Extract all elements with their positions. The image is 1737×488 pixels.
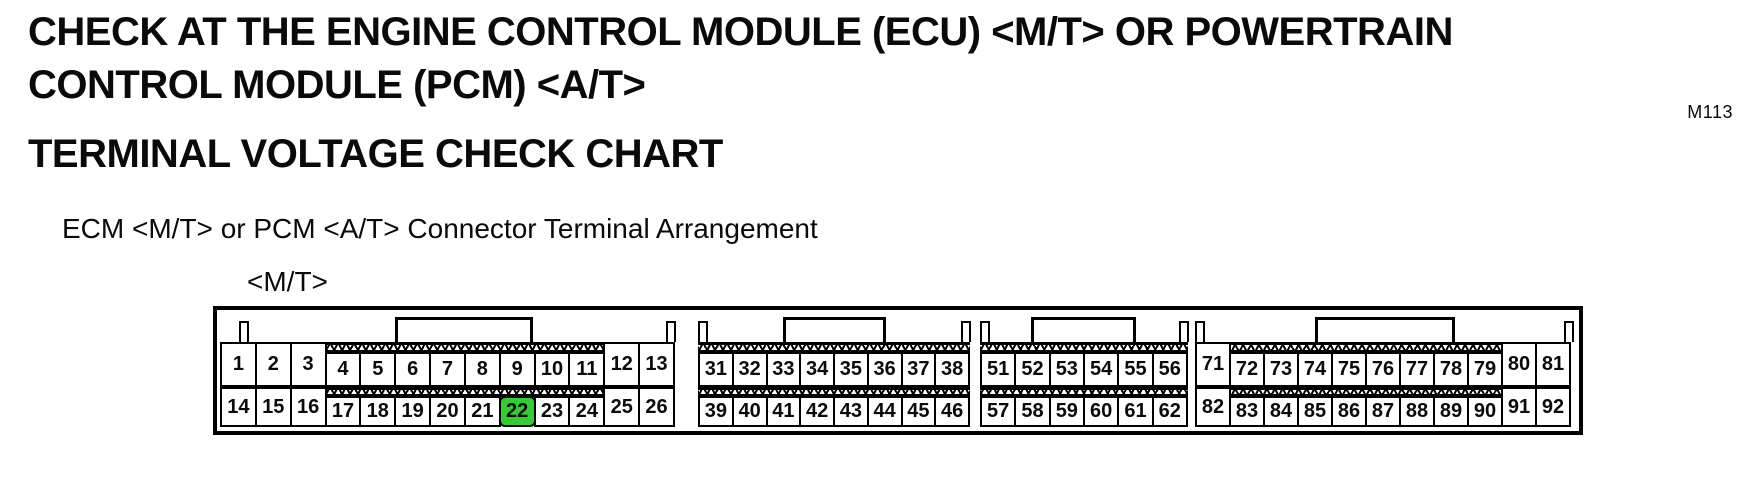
terminal-10: 10 xyxy=(534,352,571,387)
terminal-71: 71 xyxy=(1195,342,1231,387)
terminal-76: 76 xyxy=(1365,352,1401,387)
terminal-11: 11 xyxy=(568,352,605,387)
terminal-44: 44 xyxy=(867,396,903,427)
terminal-84: 84 xyxy=(1263,396,1299,427)
terminal-45: 45 xyxy=(901,396,937,427)
keying-tab xyxy=(1315,317,1455,344)
terminal-39: 39 xyxy=(698,396,734,427)
terminal-62: 62 xyxy=(1152,396,1188,427)
terminal-58: 58 xyxy=(1014,396,1050,427)
terminal-block-1: 1234567891011121314151617181920212223242… xyxy=(220,342,675,427)
terminal-60: 60 xyxy=(1083,396,1119,427)
terminal-88: 88 xyxy=(1399,396,1435,427)
terminal-2: 2 xyxy=(255,342,292,387)
terminal-85: 85 xyxy=(1297,396,1333,427)
alignment-post xyxy=(980,321,990,342)
terminal-7: 7 xyxy=(429,352,466,387)
alignment-post xyxy=(1179,321,1189,342)
terminal-90: 90 xyxy=(1467,396,1503,427)
terminal-55: 55 xyxy=(1117,352,1153,387)
terminal-block-3: 515253545556575859606162 xyxy=(980,342,1188,427)
terminal-1: 1 xyxy=(220,342,257,387)
diagram-caption: ECM <M/T> or PCM <A/T> Connector Termina… xyxy=(62,213,818,245)
variant-label: <M/T> xyxy=(247,266,328,298)
alignment-post xyxy=(1195,321,1205,342)
terminal-24: 24 xyxy=(568,396,605,427)
corner-notch xyxy=(1564,321,1574,342)
terminal-38: 38 xyxy=(934,352,970,387)
manual-page: CHECK AT THE ENGINE CONTROL MODULE (ECU)… xyxy=(0,0,1737,488)
terminal-78: 78 xyxy=(1433,352,1469,387)
terminal-18: 18 xyxy=(359,396,396,427)
terminal-8: 8 xyxy=(464,352,501,387)
keying-tab xyxy=(783,317,886,344)
terminal-33: 33 xyxy=(766,352,802,387)
terminal-12: 12 xyxy=(603,342,640,387)
alignment-post xyxy=(698,321,708,342)
terminal-54: 54 xyxy=(1083,352,1119,387)
terminal-5: 5 xyxy=(359,352,396,387)
terminal-51: 51 xyxy=(980,352,1016,387)
terminal-89: 89 xyxy=(1433,396,1469,427)
terminal-72: 72 xyxy=(1229,352,1265,387)
terminal-57: 57 xyxy=(980,396,1016,427)
terminal-52: 52 xyxy=(1014,352,1050,387)
terminal-3: 3 xyxy=(290,342,327,387)
terminal-80: 80 xyxy=(1501,342,1537,387)
terminal-4: 4 xyxy=(325,352,362,387)
terminal-86: 86 xyxy=(1331,396,1367,427)
terminal-43: 43 xyxy=(833,396,869,427)
terminal-41: 41 xyxy=(766,396,802,427)
terminal-19: 19 xyxy=(394,396,431,427)
keying-tab xyxy=(395,317,533,344)
terminal-75: 75 xyxy=(1331,352,1367,387)
terminal-91: 91 xyxy=(1501,387,1537,427)
alignment-post xyxy=(961,321,971,342)
terminal-13: 13 xyxy=(638,342,675,387)
terminal-81: 81 xyxy=(1535,342,1571,387)
connector-diagram: 1234567891011121314151617181920212223242… xyxy=(213,306,1583,435)
terminal-block-4: 7172737475767778798081828384858687888990… xyxy=(1195,342,1571,427)
terminal-34: 34 xyxy=(799,352,835,387)
terminal-37: 37 xyxy=(901,352,937,387)
corner-notch xyxy=(239,321,249,342)
alignment-post xyxy=(666,321,676,342)
terminal-79: 79 xyxy=(1467,352,1503,387)
terminal-21: 21 xyxy=(464,396,501,427)
terminal-46: 46 xyxy=(934,396,970,427)
section-title: TERMINAL VOLTAGE CHECK CHART xyxy=(28,132,723,177)
terminal-53: 53 xyxy=(1049,352,1085,387)
terminal-36: 36 xyxy=(867,352,903,387)
terminal-83: 83 xyxy=(1229,396,1265,427)
terminal-82: 82 xyxy=(1195,387,1231,427)
terminal-92: 92 xyxy=(1535,387,1571,427)
terminal-22: 22 xyxy=(499,396,536,427)
terminal-15: 15 xyxy=(255,387,292,427)
terminal-26: 26 xyxy=(638,387,675,427)
terminal-56: 56 xyxy=(1152,352,1188,387)
terminal-31: 31 xyxy=(698,352,734,387)
keying-tab xyxy=(1031,317,1136,344)
terminal-23: 23 xyxy=(534,396,571,427)
terminal-35: 35 xyxy=(833,352,869,387)
page-title: CHECK AT THE ENGINE CONTROL MODULE (ECU)… xyxy=(28,6,1498,112)
terminal-16: 16 xyxy=(290,387,327,427)
terminal-74: 74 xyxy=(1297,352,1333,387)
terminal-6: 6 xyxy=(394,352,431,387)
figure-code: M113 xyxy=(1687,102,1733,123)
terminal-40: 40 xyxy=(732,396,768,427)
terminal-61: 61 xyxy=(1117,396,1153,427)
terminal-20: 20 xyxy=(429,396,466,427)
terminal-32: 32 xyxy=(732,352,768,387)
terminal-14: 14 xyxy=(220,387,257,427)
terminal-59: 59 xyxy=(1049,396,1085,427)
terminal-block-2: 31323334353637383940414243444546 xyxy=(698,342,970,427)
terminal-25: 25 xyxy=(603,387,640,427)
terminal-87: 87 xyxy=(1365,396,1401,427)
terminal-73: 73 xyxy=(1263,352,1299,387)
terminal-42: 42 xyxy=(799,396,835,427)
terminal-77: 77 xyxy=(1399,352,1435,387)
terminal-9: 9 xyxy=(499,352,536,387)
terminal-17: 17 xyxy=(325,396,362,427)
